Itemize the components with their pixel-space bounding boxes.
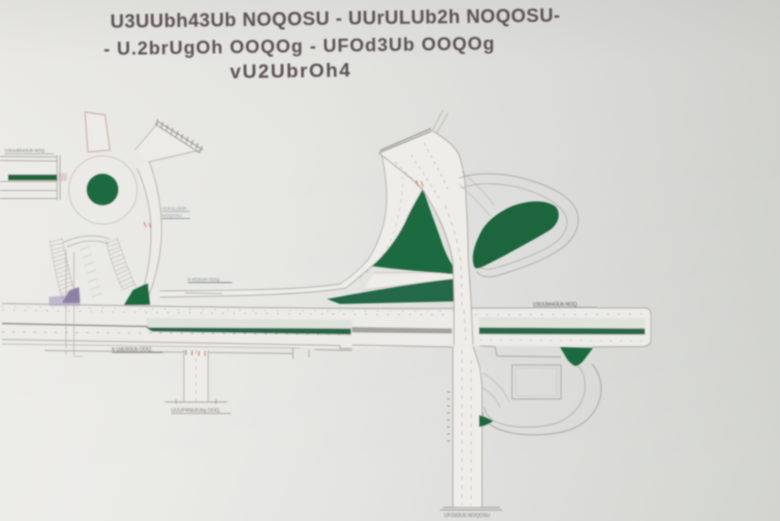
svg-text:NOQOSU: NOQOSU (162, 213, 182, 218)
svg-text:UFOd3Ub NOQOSU: UFOd3Ub NOQOSU (444, 513, 491, 519)
svg-text:UUUP4Nb3Ubg OOQ.: UUUP4Nb3Ubg OOQ. (171, 408, 221, 414)
svg-text:b 4O2Urh OOQ.: b 4O2Urh OOQ. (188, 277, 221, 282)
svg-text:UUrULUb2h: UUrULUb2h (162, 206, 187, 211)
svg-text:U3UUbh43Ub NOQ.: U3UUbh43Ub NOQ. (5, 148, 46, 153)
